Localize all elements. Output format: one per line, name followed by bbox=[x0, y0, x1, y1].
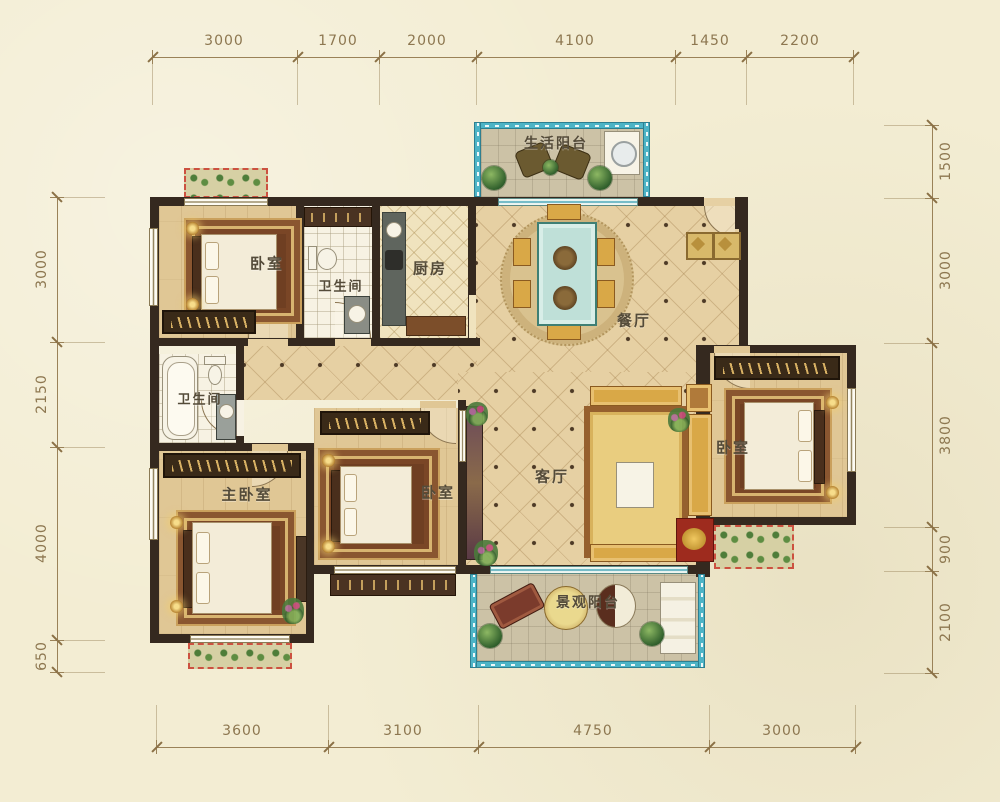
balcony-window bbox=[643, 122, 650, 197]
extension-line bbox=[152, 57, 153, 105]
bay-cabinet bbox=[330, 574, 456, 596]
pillow bbox=[344, 508, 357, 536]
extension-line bbox=[57, 672, 105, 673]
tv-console bbox=[466, 406, 483, 560]
room-label-bedroom-right: 卧室 bbox=[716, 437, 750, 458]
dim-top-5: 1450 bbox=[690, 33, 730, 49]
wardrobe bbox=[320, 411, 430, 435]
dining-chair bbox=[597, 280, 615, 308]
table-plate bbox=[553, 286, 577, 310]
pillow bbox=[344, 474, 357, 502]
extension-line bbox=[379, 57, 380, 105]
sink bbox=[348, 305, 366, 323]
pillow bbox=[196, 532, 210, 564]
balcony-window bbox=[474, 122, 650, 129]
door-opening bbox=[469, 295, 476, 338]
bedside-lamp bbox=[170, 600, 183, 613]
pillow bbox=[798, 410, 812, 442]
plant bbox=[478, 624, 502, 648]
plant bbox=[543, 160, 558, 175]
plant bbox=[588, 166, 612, 190]
room-label-dining: 餐厅 bbox=[617, 310, 651, 331]
room-label-service-balcony: 生活阳台 bbox=[524, 133, 588, 153]
flowers bbox=[668, 408, 690, 432]
floor-corridor bbox=[244, 346, 477, 400]
wall bbox=[372, 197, 380, 338]
dim-top-2: 1700 bbox=[318, 33, 358, 49]
dining-table bbox=[537, 222, 597, 326]
room-label-bathroom-left: 卫生间 bbox=[177, 389, 222, 408]
bedside-lamp bbox=[170, 516, 183, 529]
window bbox=[459, 410, 466, 462]
window bbox=[149, 468, 158, 540]
door-opening bbox=[420, 401, 456, 408]
extension-line bbox=[297, 57, 298, 105]
dim-right-1: 1500 bbox=[938, 141, 954, 181]
bedside-lamp bbox=[322, 540, 335, 553]
window bbox=[149, 228, 158, 306]
pillow bbox=[205, 242, 219, 270]
dim-top-4: 4100 bbox=[555, 33, 595, 49]
extension-line bbox=[884, 343, 932, 344]
room-label-master-bedroom: 主卧室 bbox=[221, 484, 272, 505]
chaise-lounge bbox=[660, 582, 696, 654]
extension-line bbox=[675, 57, 676, 105]
toilet-bowl bbox=[317, 248, 337, 270]
balcony-window bbox=[474, 122, 481, 197]
extension-line bbox=[57, 197, 105, 198]
kitchen-sink bbox=[386, 222, 402, 238]
door-opening bbox=[237, 400, 244, 436]
extension-line bbox=[57, 342, 105, 343]
right-dimension-line bbox=[932, 125, 933, 673]
room-label-bathroom-top: 卫生间 bbox=[318, 276, 363, 295]
flower-box-top bbox=[184, 168, 268, 198]
dining-chair bbox=[547, 204, 581, 220]
sofa bbox=[590, 386, 682, 406]
floor-plan-canvas: 3000 1700 2000 4100 1450 2200 3600 3100 … bbox=[0, 0, 1000, 802]
door-opening bbox=[252, 444, 288, 451]
dining-chair bbox=[513, 280, 531, 308]
dining-chair bbox=[597, 238, 615, 266]
dim-top-6: 2200 bbox=[780, 33, 820, 49]
dim-right-4: 900 bbox=[938, 534, 954, 564]
extension-line bbox=[478, 705, 479, 747]
hall-cabinet bbox=[304, 207, 372, 227]
dim-bottom-3: 4750 bbox=[573, 723, 613, 739]
dim-left-2: 2150 bbox=[34, 374, 50, 414]
toilet-bowl bbox=[208, 365, 222, 385]
dim-left-4: 650 bbox=[34, 641, 50, 671]
balcony-window bbox=[470, 661, 705, 668]
dim-bottom-1: 3600 bbox=[222, 723, 262, 739]
extension-line bbox=[884, 527, 932, 528]
plant bbox=[640, 622, 664, 646]
door-opening bbox=[335, 339, 371, 346]
door-opening bbox=[714, 346, 750, 353]
dim-top-3: 2000 bbox=[407, 33, 447, 49]
extension-line bbox=[884, 198, 932, 199]
washer-drum-icon bbox=[611, 141, 637, 167]
room-label-view-balcony: 景观阳台 bbox=[556, 592, 620, 612]
flowers bbox=[282, 598, 304, 624]
room-label-bedroom-top-left: 卧室 bbox=[250, 253, 284, 274]
wall bbox=[710, 517, 856, 525]
window bbox=[184, 198, 268, 206]
balcony-slider bbox=[490, 566, 688, 574]
dim-bottom-4: 3000 bbox=[762, 723, 802, 739]
bedside-lamp bbox=[322, 454, 335, 467]
left-dimension-line bbox=[57, 197, 58, 672]
bottom-dimension-line bbox=[156, 747, 855, 748]
extension-line bbox=[855, 705, 856, 747]
extension-line bbox=[884, 125, 932, 126]
wall bbox=[306, 450, 314, 643]
extension-line bbox=[57, 447, 105, 448]
door-opening bbox=[248, 339, 288, 346]
dim-bottom-2: 3100 bbox=[383, 723, 423, 739]
flowers bbox=[474, 540, 498, 566]
mat-cushion bbox=[682, 528, 706, 550]
door-opening bbox=[704, 198, 735, 206]
bedside-lamp bbox=[826, 486, 839, 499]
extension-line bbox=[709, 705, 710, 747]
bed-headboard bbox=[814, 410, 825, 484]
extension-line bbox=[884, 673, 932, 674]
dining-chair bbox=[547, 324, 581, 340]
balcony-window bbox=[698, 574, 705, 668]
flower-box-master bbox=[188, 643, 292, 669]
wall bbox=[739, 206, 748, 352]
wall bbox=[150, 338, 480, 346]
window bbox=[190, 635, 290, 643]
dim-left-1: 3000 bbox=[34, 249, 50, 289]
plant bbox=[482, 166, 506, 190]
window bbox=[334, 566, 456, 574]
wardrobe bbox=[714, 356, 840, 380]
dim-right-3: 3800 bbox=[938, 415, 954, 455]
bedside-lamp bbox=[826, 396, 839, 409]
wall bbox=[150, 443, 314, 451]
sofa bbox=[688, 414, 712, 516]
stove bbox=[385, 250, 403, 270]
window bbox=[847, 388, 856, 472]
wardrobe bbox=[163, 453, 301, 478]
wall bbox=[644, 197, 704, 206]
extension-line bbox=[156, 705, 157, 747]
toilet bbox=[308, 246, 317, 270]
extension-line bbox=[57, 640, 105, 641]
pillow bbox=[205, 276, 219, 304]
balcony-window bbox=[470, 574, 477, 668]
dining-chair bbox=[513, 238, 531, 266]
room-label-bedroom-middle: 卧室 bbox=[421, 482, 455, 503]
dim-right-5: 2100 bbox=[938, 602, 954, 642]
table-plate bbox=[553, 246, 577, 270]
coffee-table bbox=[616, 462, 654, 508]
flowers bbox=[466, 402, 488, 426]
extension-line bbox=[476, 57, 477, 105]
flower-box-right bbox=[714, 525, 794, 569]
extension-line bbox=[746, 57, 747, 105]
dim-top-1: 3000 bbox=[204, 33, 244, 49]
toilet bbox=[204, 356, 226, 365]
bedside-lamp bbox=[186, 222, 199, 235]
kitchen-cabinet bbox=[406, 316, 466, 336]
pillow bbox=[798, 450, 812, 482]
extension-line bbox=[853, 57, 854, 105]
tv-cabinet bbox=[296, 536, 307, 602]
dim-right-2: 3000 bbox=[938, 250, 954, 290]
pillow bbox=[196, 572, 210, 604]
dim-left-3: 4000 bbox=[34, 523, 50, 563]
wardrobe bbox=[162, 310, 256, 334]
extension-line bbox=[328, 705, 329, 747]
room-label-kitchen: 厨房 bbox=[413, 258, 447, 279]
sofa bbox=[590, 544, 682, 562]
room-label-living: 客厅 bbox=[535, 466, 569, 487]
extension-line bbox=[884, 571, 932, 572]
armchair bbox=[686, 384, 712, 412]
